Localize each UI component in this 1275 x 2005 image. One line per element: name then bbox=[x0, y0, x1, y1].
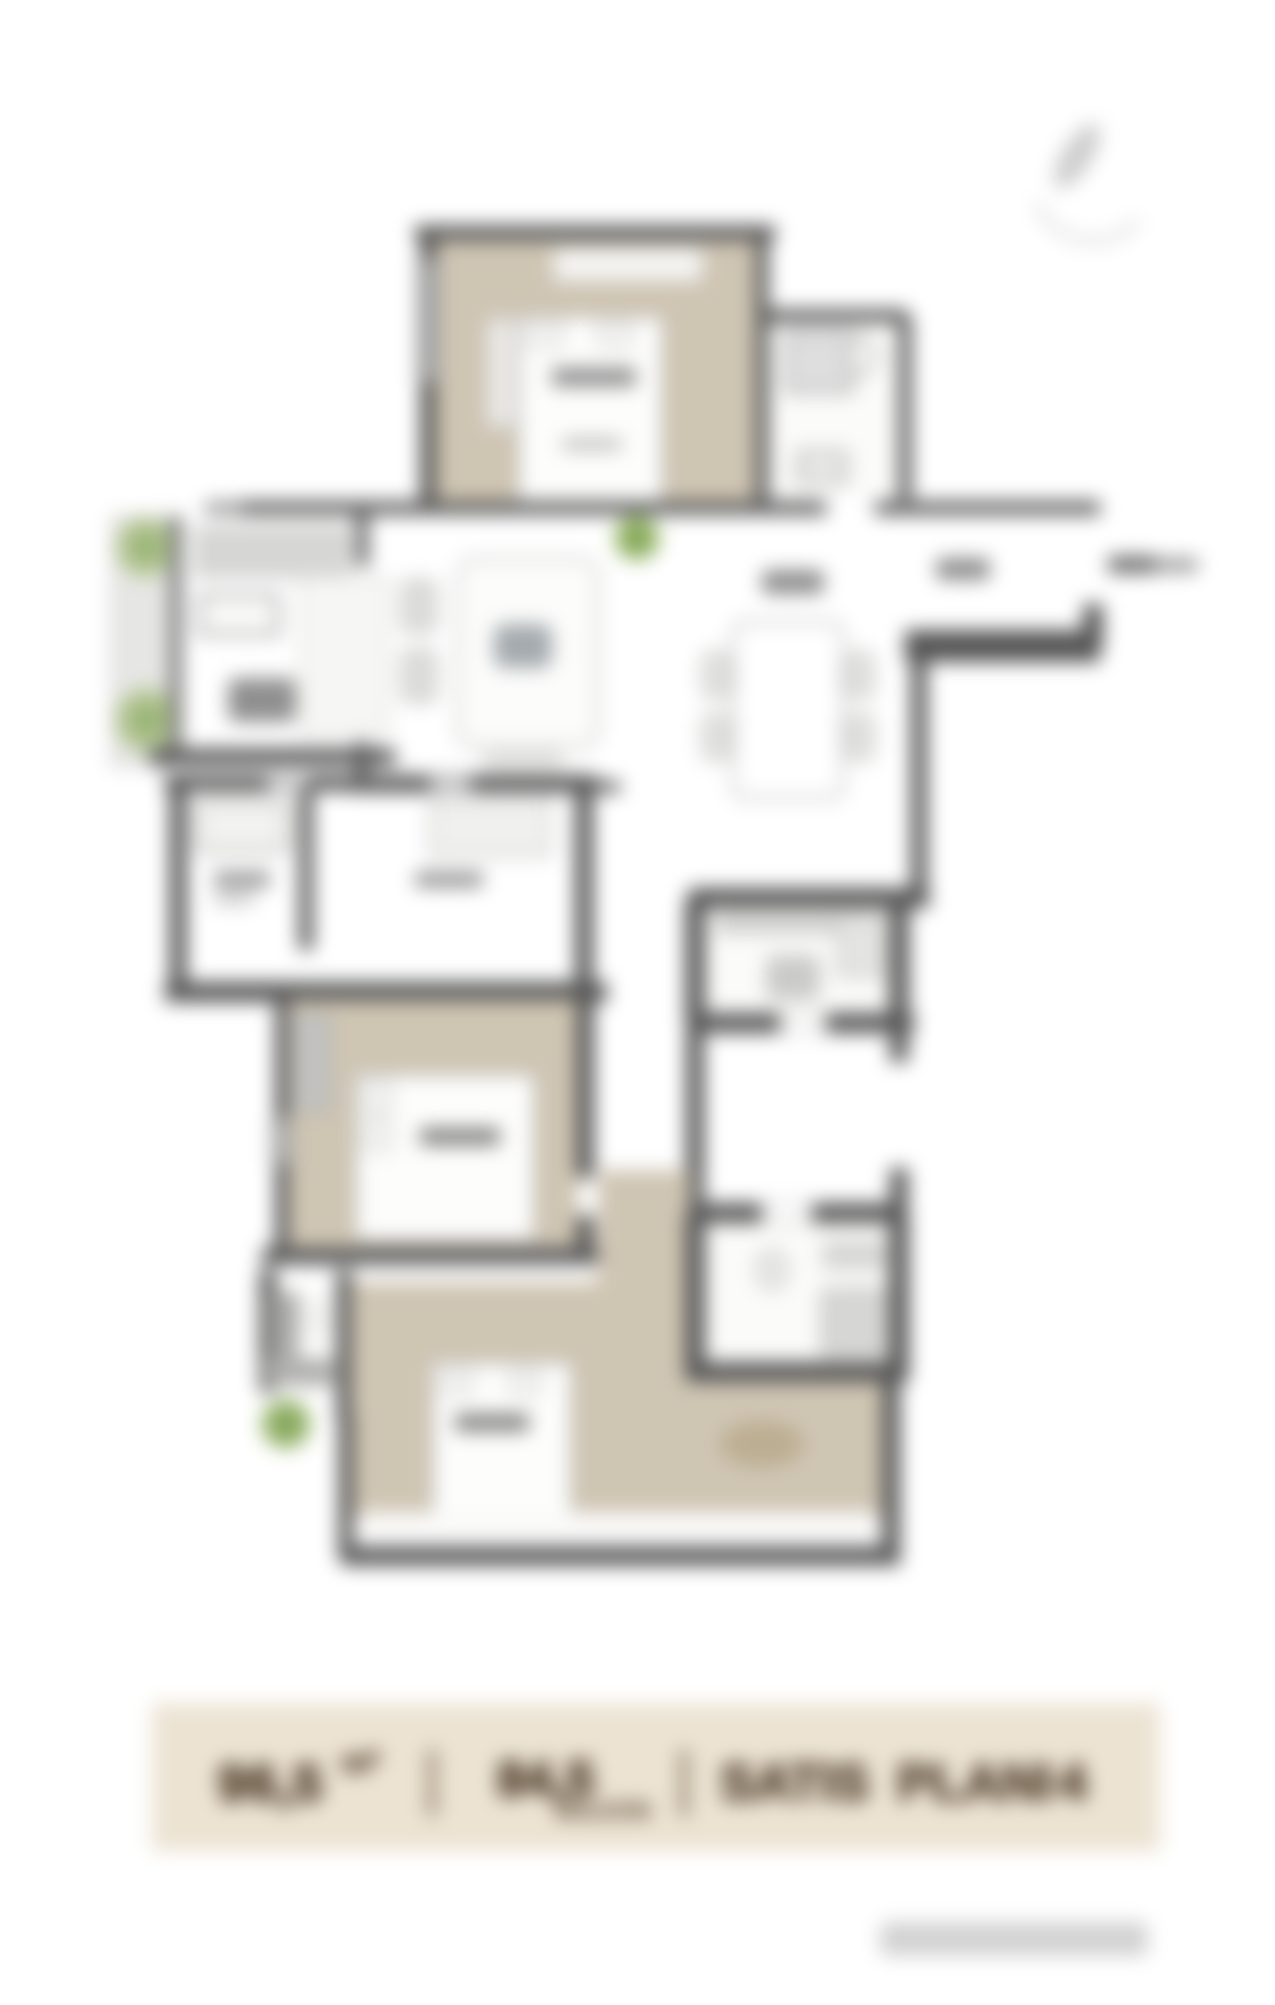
svg-text:96,5: 96,5 bbox=[218, 1755, 323, 1813]
svg-text:SATIS: SATIS bbox=[720, 1754, 869, 1812]
svg-text:m²: m² bbox=[342, 1746, 379, 1779]
svg-text:PLANI: PLANI bbox=[897, 1754, 1053, 1812]
svg-text:BALKON: BALKON bbox=[556, 1798, 650, 1823]
svg-text:4: 4 bbox=[1058, 1754, 1087, 1812]
